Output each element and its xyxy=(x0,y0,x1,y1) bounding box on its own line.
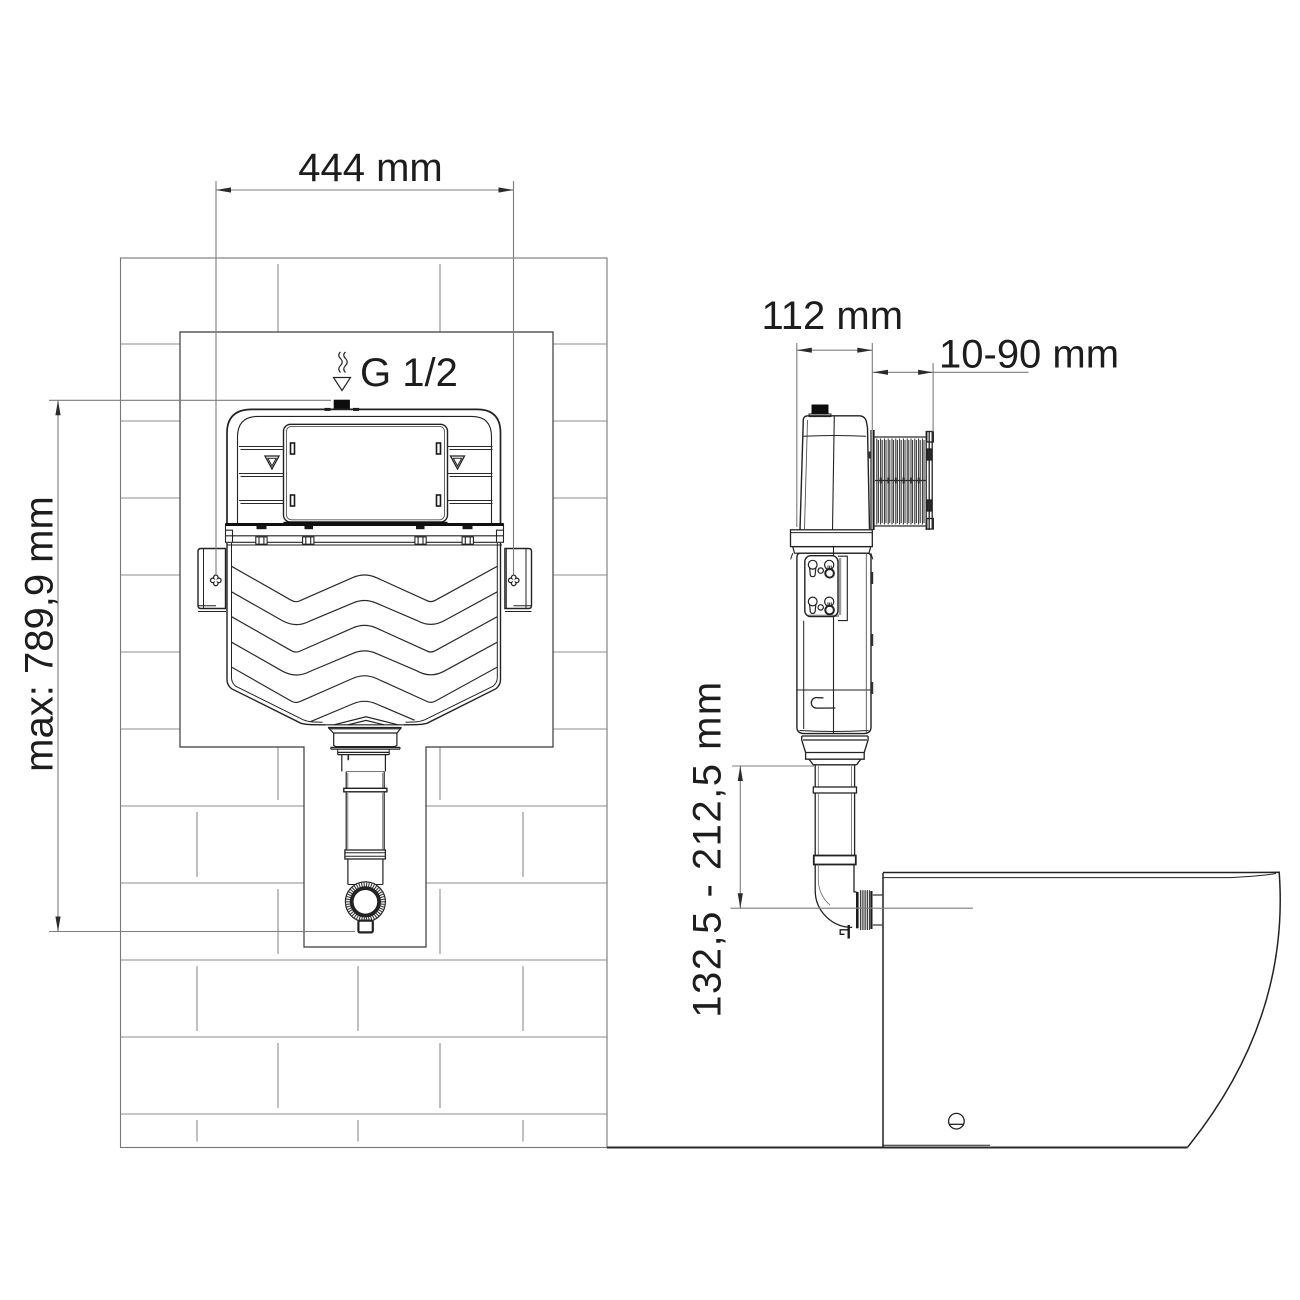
svg-text:max: 789,9 mm: max: 789,9 mm xyxy=(17,496,61,772)
svg-text:112 mm: 112 mm xyxy=(762,294,904,338)
svg-text:132,5 - 212,5 mm: 132,5 - 212,5 mm xyxy=(686,680,730,1018)
svg-text:10-90 mm: 10-90 mm xyxy=(939,332,1119,376)
svg-text:444 mm: 444 mm xyxy=(298,146,443,190)
svg-text:G 1/2: G 1/2 xyxy=(360,351,458,395)
